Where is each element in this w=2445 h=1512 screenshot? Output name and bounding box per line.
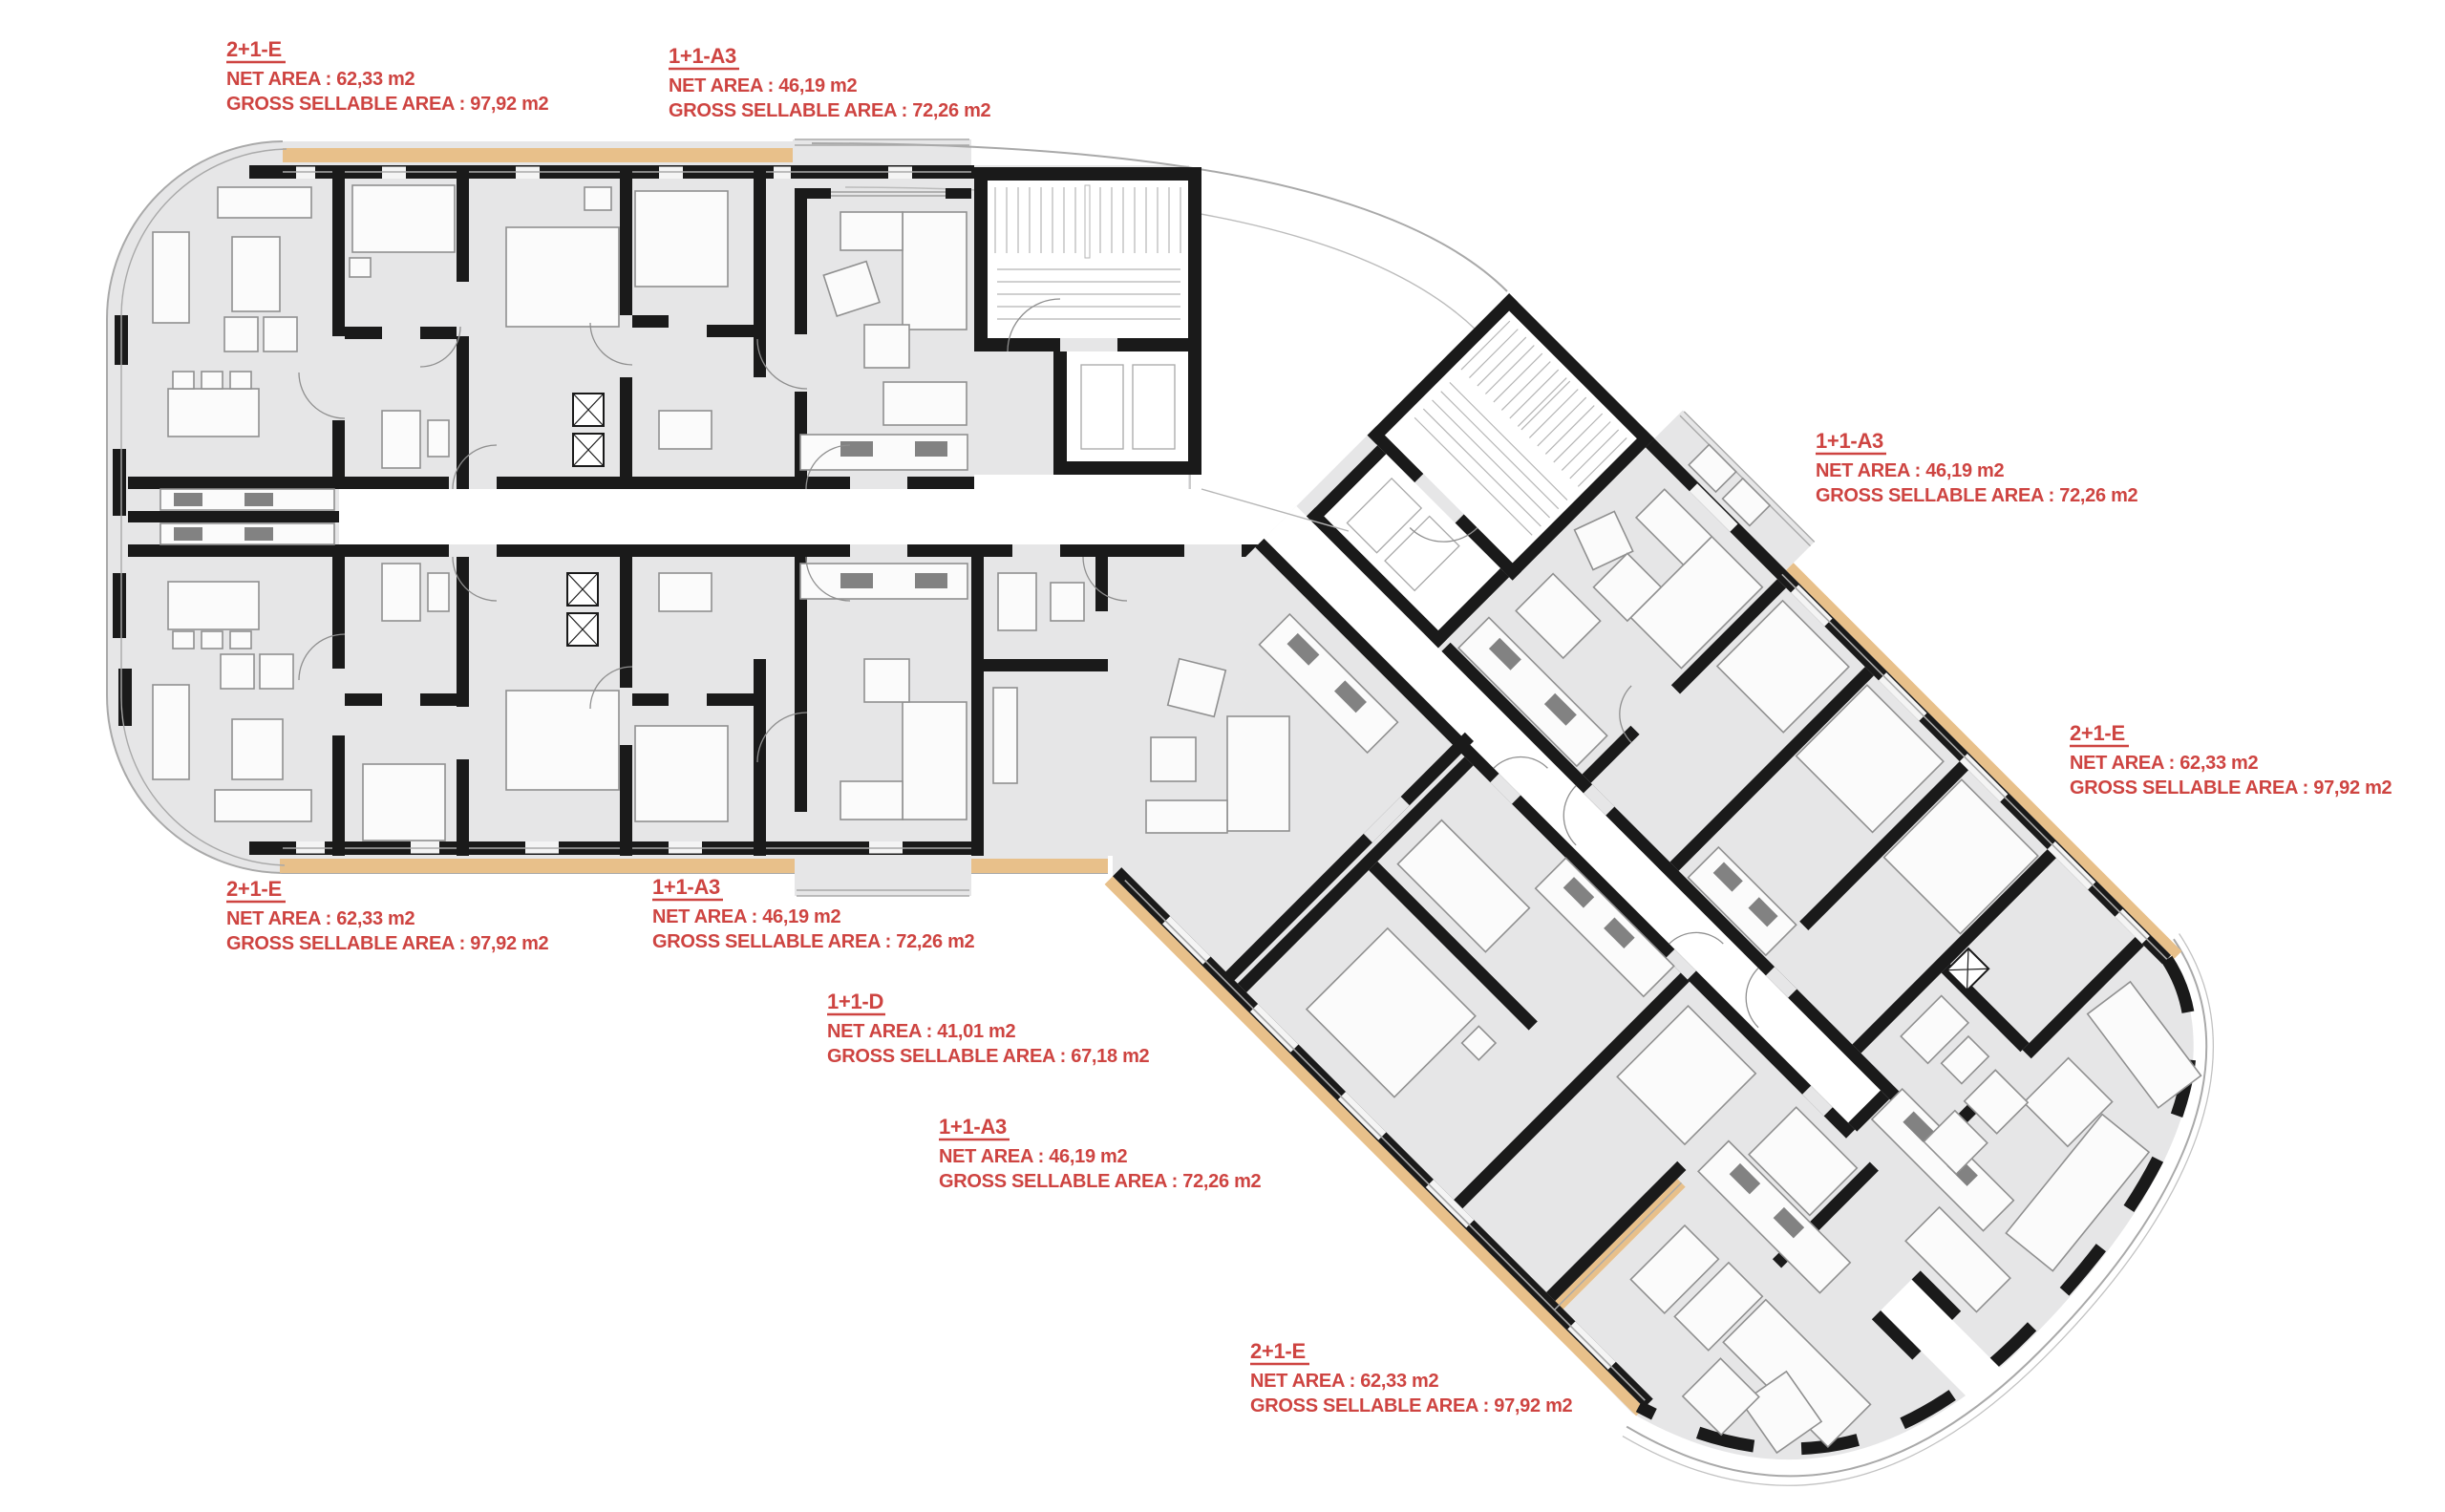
svg-text:1+1-A3: 1+1-A3 (652, 875, 720, 899)
svg-text:GROSS SELLABLE AREA : 97,92 m2: GROSS SELLABLE AREA : 97,92 m2 (2070, 777, 2392, 799)
svg-text:1+1-D: 1+1-D (827, 990, 883, 1013)
svg-text:GROSS SELLABLE AREA : 67,18 m2: GROSS SELLABLE AREA : 67,18 m2 (827, 1046, 1150, 1067)
svg-text:2+1-E: 2+1-E (1250, 1339, 1306, 1363)
svg-text:1+1-A3: 1+1-A3 (669, 44, 736, 68)
svg-text:GROSS SELLABLE AREA : 97,92 m2: GROSS SELLABLE AREA : 97,92 m2 (226, 933, 549, 954)
svg-text:GROSS SELLABLE AREA : 72,26 m2: GROSS SELLABLE AREA : 72,26 m2 (1816, 485, 2138, 506)
svg-text:1+1-A3: 1+1-A3 (1816, 429, 1883, 453)
svg-text:NET AREA : 46,19 m2: NET AREA : 46,19 m2 (939, 1146, 1128, 1167)
svg-text:GROSS SELLABLE AREA : 97,92 m2: GROSS SELLABLE AREA : 97,92 m2 (226, 94, 549, 115)
svg-text:GROSS SELLABLE AREA : 72,26 m2: GROSS SELLABLE AREA : 72,26 m2 (669, 100, 991, 121)
svg-text:NET AREA : 62,33 m2: NET AREA : 62,33 m2 (226, 908, 415, 929)
svg-text:GROSS SELLABLE AREA : 72,26 m2: GROSS SELLABLE AREA : 72,26 m2 (652, 931, 975, 952)
svg-text:NET AREA : 62,33 m2: NET AREA : 62,33 m2 (226, 69, 415, 90)
svg-text:NET AREA : 62,33 m2: NET AREA : 62,33 m2 (1250, 1371, 1439, 1392)
svg-text:NET AREA : 46,19 m2: NET AREA : 46,19 m2 (669, 75, 858, 96)
svg-text:2+1-E: 2+1-E (226, 877, 282, 901)
svg-text:NET AREA : 46,19 m2: NET AREA : 46,19 m2 (1816, 460, 2005, 481)
svg-text:2+1-E: 2+1-E (226, 37, 282, 61)
svg-text:2+1-E: 2+1-E (2070, 721, 2125, 745)
svg-text:NET AREA : 62,33 m2: NET AREA : 62,33 m2 (2070, 753, 2259, 774)
svg-text:NET AREA : 46,19 m2: NET AREA : 46,19 m2 (652, 906, 841, 927)
svg-text:GROSS SELLABLE AREA : 97,92 m2: GROSS SELLABLE AREA : 97,92 m2 (1250, 1395, 1573, 1416)
svg-text:1+1-A3: 1+1-A3 (939, 1115, 1007, 1139)
svg-text:NET AREA : 41,01 m2: NET AREA : 41,01 m2 (827, 1021, 1016, 1042)
svg-text:GROSS SELLABLE AREA : 72,26 m2: GROSS SELLABLE AREA : 72,26 m2 (939, 1171, 1262, 1192)
